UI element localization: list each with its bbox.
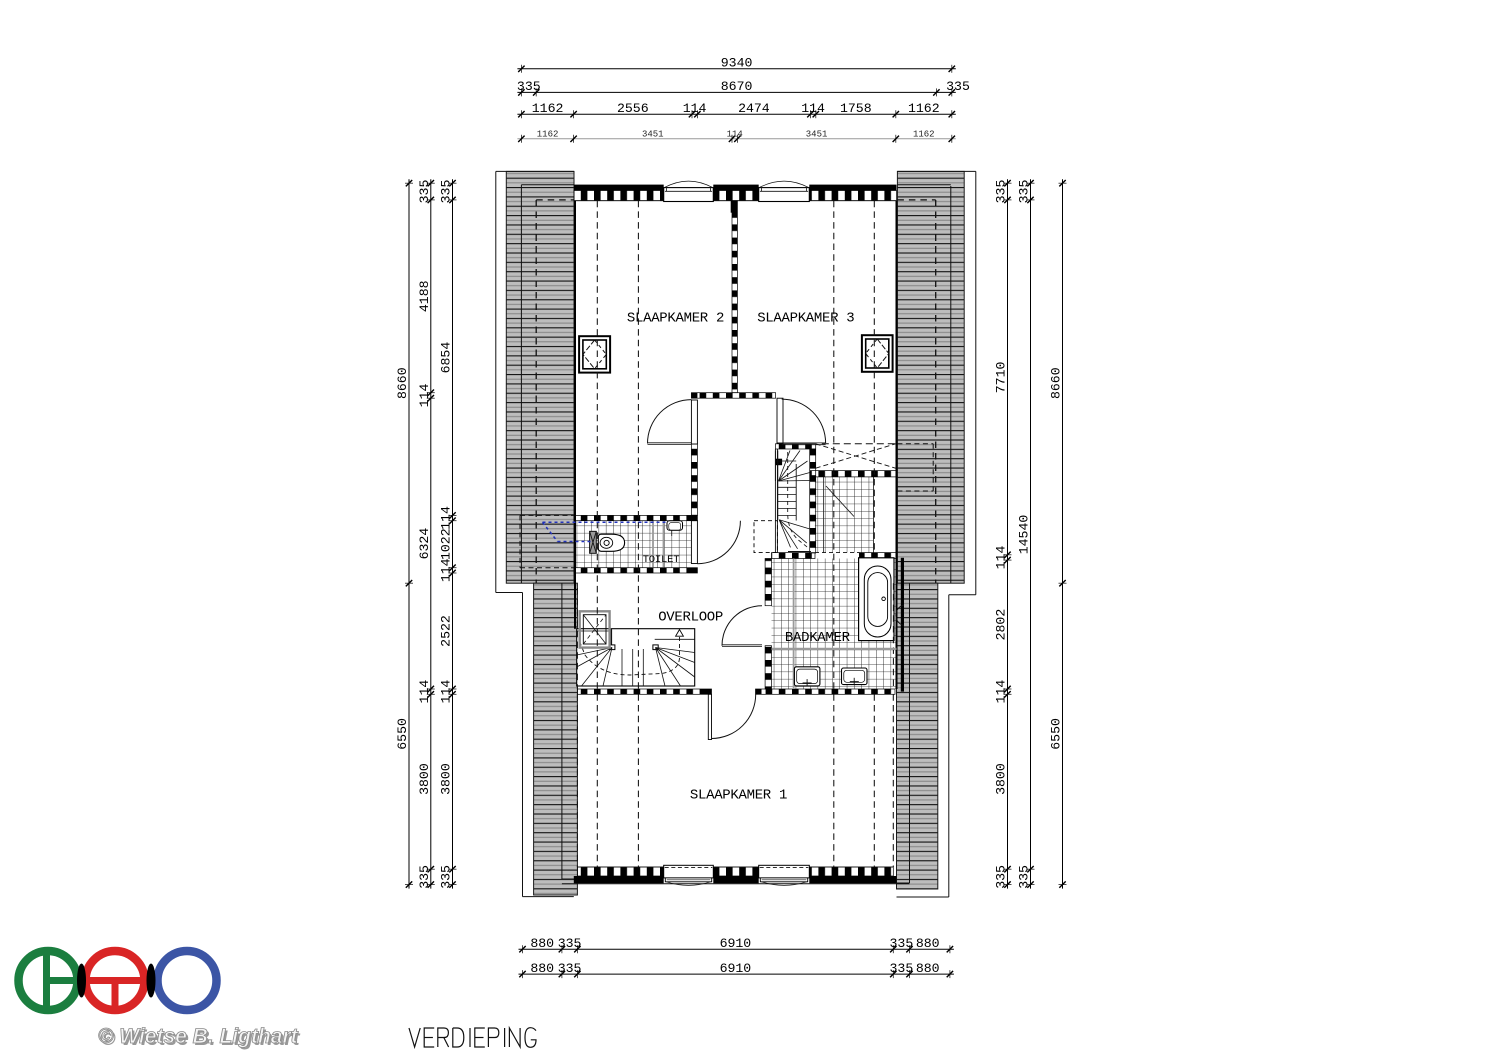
svg-text:335: 335	[1017, 180, 1032, 204]
svg-text:6550: 6550	[1049, 718, 1064, 750]
svg-text:335: 335	[994, 865, 1009, 889]
svg-text:114: 114	[801, 101, 825, 116]
svg-text:2522: 2522	[439, 615, 454, 647]
svg-text:6854: 6854	[439, 342, 454, 374]
svg-text:2556: 2556	[617, 101, 649, 116]
svg-text:3800: 3800	[417, 763, 432, 795]
svg-text:335: 335	[890, 961, 914, 976]
svg-text:114: 114	[439, 506, 454, 530]
svg-text:1162: 1162	[913, 130, 935, 140]
svg-text:SLAAPKAMER 3: SLAAPKAMER 3	[757, 311, 854, 327]
svg-text:3451: 3451	[642, 130, 664, 140]
svg-text:114: 114	[417, 680, 432, 704]
svg-text:9340: 9340	[721, 56, 753, 71]
svg-text:880: 880	[530, 961, 554, 976]
svg-text:114: 114	[994, 680, 1009, 704]
svg-text:8660: 8660	[395, 367, 410, 399]
svg-text:8660: 8660	[1049, 367, 1064, 399]
svg-text:3800: 3800	[439, 763, 454, 795]
svg-text:8670: 8670	[721, 79, 753, 94]
svg-text:6910: 6910	[720, 936, 752, 951]
svg-text:114: 114	[727, 130, 743, 140]
svg-text:1162: 1162	[532, 101, 564, 116]
svg-text:14540: 14540	[1017, 515, 1032, 555]
svg-text:6910: 6910	[720, 961, 752, 976]
svg-text:SLAAPKAMER 1: SLAAPKAMER 1	[690, 788, 787, 804]
svg-text:335: 335	[439, 180, 454, 204]
svg-text:TOILET: TOILET	[643, 554, 680, 566]
svg-text:2802: 2802	[994, 609, 1009, 641]
svg-text:3800: 3800	[994, 763, 1009, 795]
svg-text:1162: 1162	[537, 130, 559, 140]
svg-text:335: 335	[946, 79, 970, 94]
svg-text:OVERLOOP: OVERLOOP	[658, 609, 723, 625]
svg-text:335: 335	[1017, 865, 1032, 889]
svg-text:1758: 1758	[840, 101, 872, 116]
svg-text:2474: 2474	[738, 101, 770, 116]
svg-text:880: 880	[916, 936, 940, 951]
svg-text:1162: 1162	[908, 101, 940, 116]
svg-text:335: 335	[439, 865, 454, 889]
svg-text:4188: 4188	[417, 280, 432, 312]
svg-text:BADKAMER: BADKAMER	[785, 630, 851, 646]
svg-text:7710: 7710	[994, 361, 1009, 393]
svg-text:SLAAPKAMER 2: SLAAPKAMER 2	[627, 311, 724, 327]
svg-text:335: 335	[517, 79, 541, 94]
svg-text:114: 114	[439, 558, 454, 582]
svg-text:3451: 3451	[806, 130, 828, 140]
svg-text:114: 114	[439, 680, 454, 704]
svg-text:6324: 6324	[417, 528, 432, 560]
svg-text:335: 335	[994, 180, 1009, 204]
svg-text:114: 114	[683, 101, 707, 116]
svg-text:335: 335	[890, 936, 914, 951]
svg-text:880: 880	[530, 936, 554, 951]
svg-text:6550: 6550	[395, 718, 410, 750]
svg-text:335: 335	[417, 865, 432, 889]
svg-text:1022: 1022	[439, 528, 454, 560]
svg-text:114: 114	[417, 384, 432, 408]
svg-text:335: 335	[417, 180, 432, 204]
svg-text:335: 335	[558, 936, 582, 951]
svg-text:335: 335	[558, 961, 582, 976]
svg-text:114: 114	[994, 546, 1009, 570]
svg-text:© Wietse B. Ligthart: © Wietse B. Ligthart	[98, 1025, 299, 1048]
svg-text:880: 880	[916, 961, 940, 976]
